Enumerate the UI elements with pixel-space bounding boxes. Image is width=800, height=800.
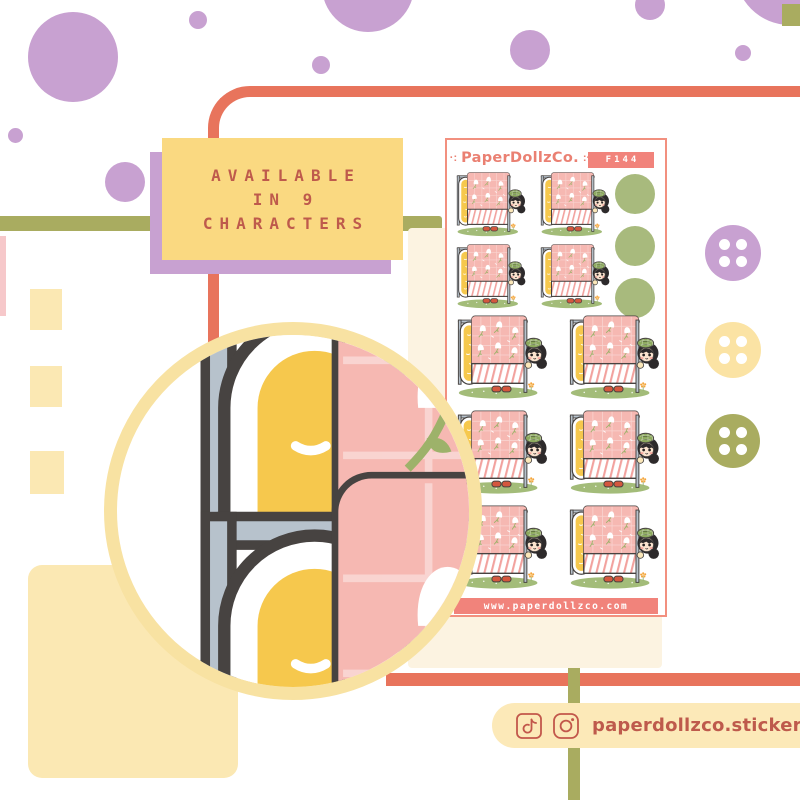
- sticker-small: [537, 168, 611, 238]
- decorative-square: [782, 4, 800, 26]
- availability-banner: AVAILABLE IN 9 CHARACTERS: [162, 138, 403, 260]
- yellow-square: [30, 366, 62, 407]
- magnified-sticker-art: [117, 335, 469, 687]
- sticker-small: [537, 240, 611, 310]
- instagram-icon: [551, 711, 581, 741]
- decorative-dot: [735, 45, 751, 61]
- sheet-header: ·: PaperDollzCo. :·: [455, 147, 585, 169]
- banner-line: AVAILABLE: [204, 166, 361, 185]
- frame-line-coral-top: [262, 86, 800, 97]
- yellow-square: [30, 289, 62, 330]
- social-pill: paperdollzco.stickers: [492, 703, 800, 748]
- clothing-button-purple: [705, 225, 761, 281]
- banner-line: IN 9: [246, 190, 320, 209]
- tiktok-icon: [514, 711, 544, 741]
- decorative-dot: [105, 162, 145, 202]
- sticker-large: [565, 500, 661, 591]
- sticker-large: [565, 405, 661, 496]
- banner-line: CHARACTERS: [196, 214, 369, 233]
- brand-title: PaperDollzCo.: [461, 150, 579, 166]
- product-graphic: ·: PaperDollzCo. :· F144 www.paperdollzc…: [0, 0, 800, 800]
- sparkle-left: ·:: [450, 152, 457, 164]
- decorative-dot: [510, 30, 550, 70]
- product-code-badge: F144: [588, 152, 654, 168]
- social-handle: paperdollzco.stickers: [588, 715, 800, 736]
- decorative-dot: [312, 56, 330, 74]
- frame-corner-coral: [208, 86, 268, 146]
- clothing-button-yellow: [705, 322, 761, 378]
- sticker-large: [565, 310, 661, 401]
- decorative-dot: [635, 0, 665, 20]
- decorative-dot: [189, 11, 207, 29]
- website-url: www.paperdollzco.com: [484, 601, 628, 612]
- decorative-circle: [322, 0, 414, 32]
- magnifier-circle: [104, 322, 482, 700]
- decorative-dot: [8, 128, 23, 143]
- clothing-button-olive: [706, 414, 760, 468]
- sticker-small: [453, 240, 527, 310]
- sticker-small: [453, 168, 527, 238]
- website-bar: www.paperdollzco.com: [454, 598, 658, 614]
- green-dot-sticker: [615, 226, 655, 266]
- yellow-square: [30, 451, 64, 494]
- edge-strip-pink: [0, 236, 6, 316]
- green-dot-sticker: [615, 174, 655, 214]
- decorative-circle: [28, 12, 118, 102]
